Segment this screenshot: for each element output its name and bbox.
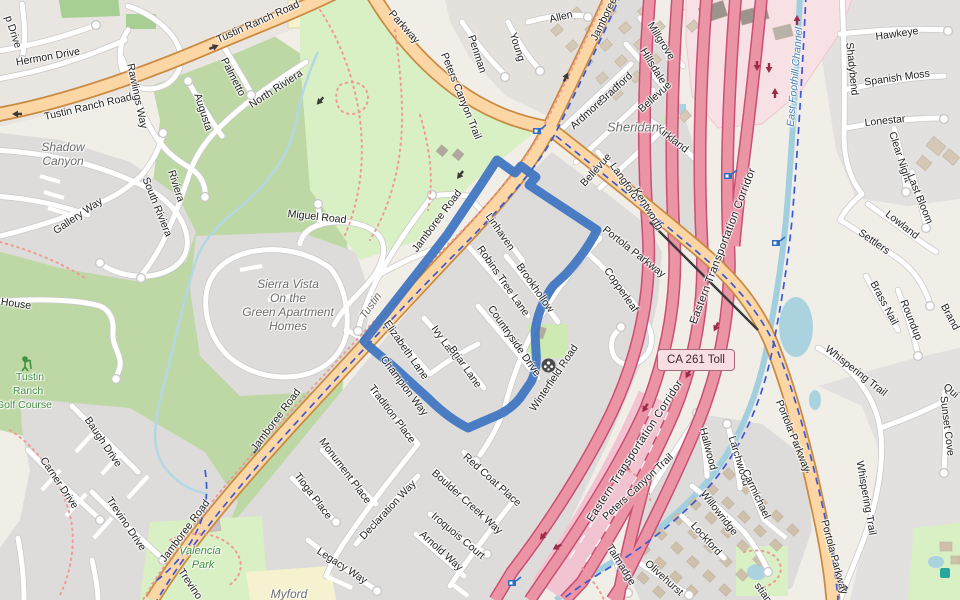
map-canvas[interactable]: Tustin Ranch RoadTustin Ranch RoadParkwa… <box>0 0 960 600</box>
map-graphics <box>0 0 960 600</box>
toll-shield-text: CA 261 Toll <box>667 354 725 366</box>
toll-shield-badge: CA 261 Toll <box>657 349 735 371</box>
